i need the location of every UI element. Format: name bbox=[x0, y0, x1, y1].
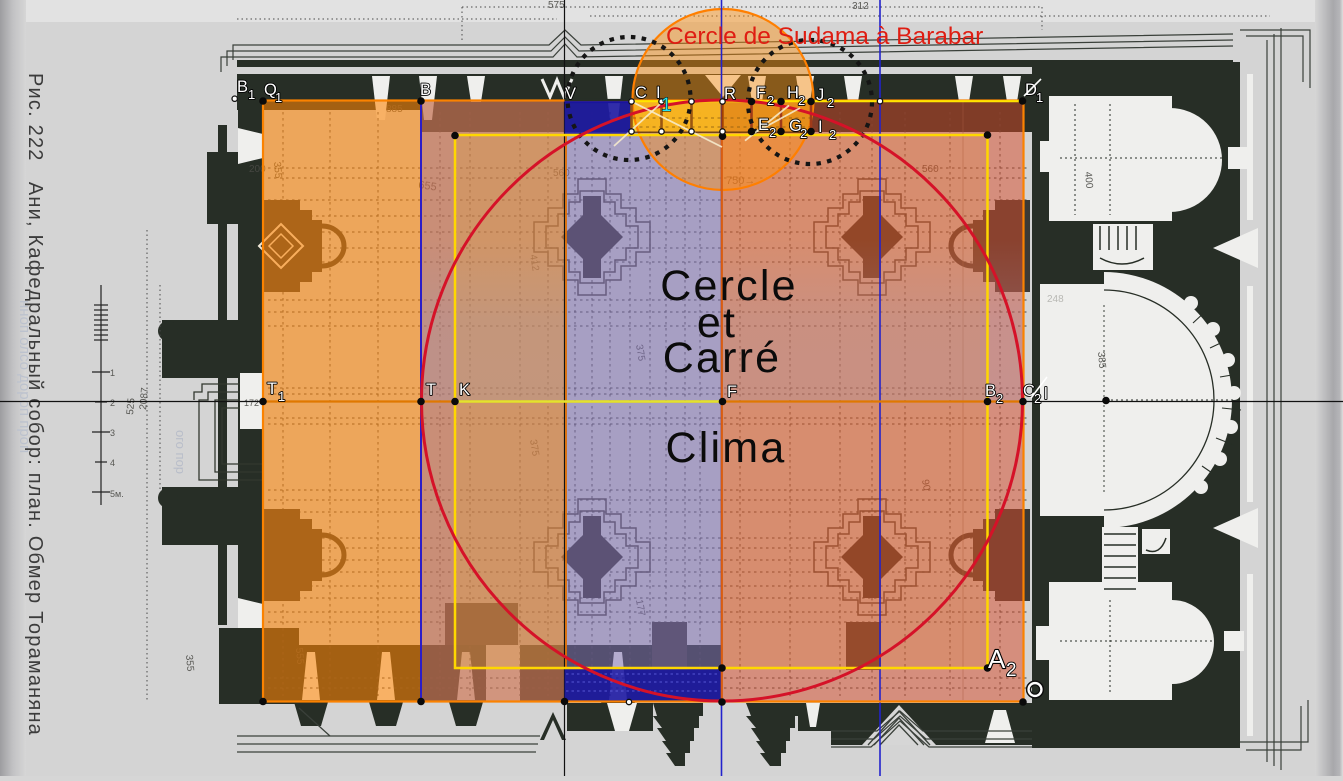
svg-text:400: 400 bbox=[1082, 171, 1094, 189]
svg-text:1: 1 bbox=[278, 389, 285, 404]
svg-text:2: 2 bbox=[110, 398, 115, 408]
svg-text:2: 2 bbox=[829, 127, 836, 142]
svg-text:B: B bbox=[420, 81, 431, 99]
svg-text:2: 2 bbox=[767, 93, 774, 108]
svg-text:C: C bbox=[635, 84, 647, 102]
svg-text:525: 525 bbox=[125, 397, 137, 415]
svg-text:T: T bbox=[426, 381, 436, 399]
svg-text:2: 2 bbox=[996, 391, 1003, 406]
svg-text:1: 1 bbox=[275, 90, 282, 105]
svg-text:575: 575 bbox=[548, 0, 565, 11]
svg-text:E: E bbox=[758, 116, 769, 134]
svg-text:1: 1 bbox=[1036, 90, 1043, 105]
svg-text:2: 2 bbox=[827, 95, 834, 110]
svg-text:l: l bbox=[1044, 385, 1048, 403]
svg-text:Рис. 222 Ани, Кафедральный с: Рис. 222 Ани, Кафедральный собор: план. … bbox=[24, 73, 46, 736]
svg-text:ого пор: ого пор bbox=[173, 430, 188, 474]
svg-text:172: 172 bbox=[244, 398, 259, 408]
svg-text:T: T bbox=[267, 380, 277, 398]
svg-text:2: 2 bbox=[1006, 660, 1017, 681]
svg-text:I: I bbox=[656, 84, 661, 102]
svg-text:Carré: Carré bbox=[663, 334, 782, 382]
svg-text:355: 355 bbox=[183, 654, 195, 672]
svg-text:F: F bbox=[756, 84, 766, 102]
svg-text:Clima: Clima bbox=[666, 424, 787, 472]
svg-text:3: 3 bbox=[110, 428, 115, 438]
svg-text:K: K bbox=[459, 381, 470, 399]
svg-text:J: J bbox=[816, 86, 824, 104]
svg-text:V: V bbox=[565, 85, 576, 103]
svg-text:5м.: 5м. bbox=[110, 489, 124, 499]
svg-text:B: B bbox=[985, 382, 996, 400]
svg-text:Cercle de Sudama à Barabar: Cercle de Sudama à Barabar bbox=[666, 23, 983, 50]
svg-text:4: 4 bbox=[110, 458, 115, 468]
svg-text:2: 2 bbox=[769, 125, 776, 140]
svg-text:1: 1 bbox=[248, 87, 255, 102]
svg-text:2: 2 bbox=[800, 126, 807, 141]
svg-text:2: 2 bbox=[798, 93, 805, 108]
svg-text:1: 1 bbox=[661, 95, 672, 116]
svg-text:1: 1 bbox=[110, 368, 115, 378]
svg-text:I: I bbox=[818, 118, 823, 136]
svg-text:2087: 2087 bbox=[138, 387, 151, 411]
svg-text:248: 248 bbox=[1047, 294, 1064, 305]
svg-text:B: B bbox=[237, 78, 248, 96]
svg-text:F: F bbox=[727, 383, 737, 401]
svg-text:A: A bbox=[988, 644, 1006, 674]
svg-text:385: 385 bbox=[1095, 351, 1107, 369]
svg-text:R: R bbox=[724, 85, 736, 103]
